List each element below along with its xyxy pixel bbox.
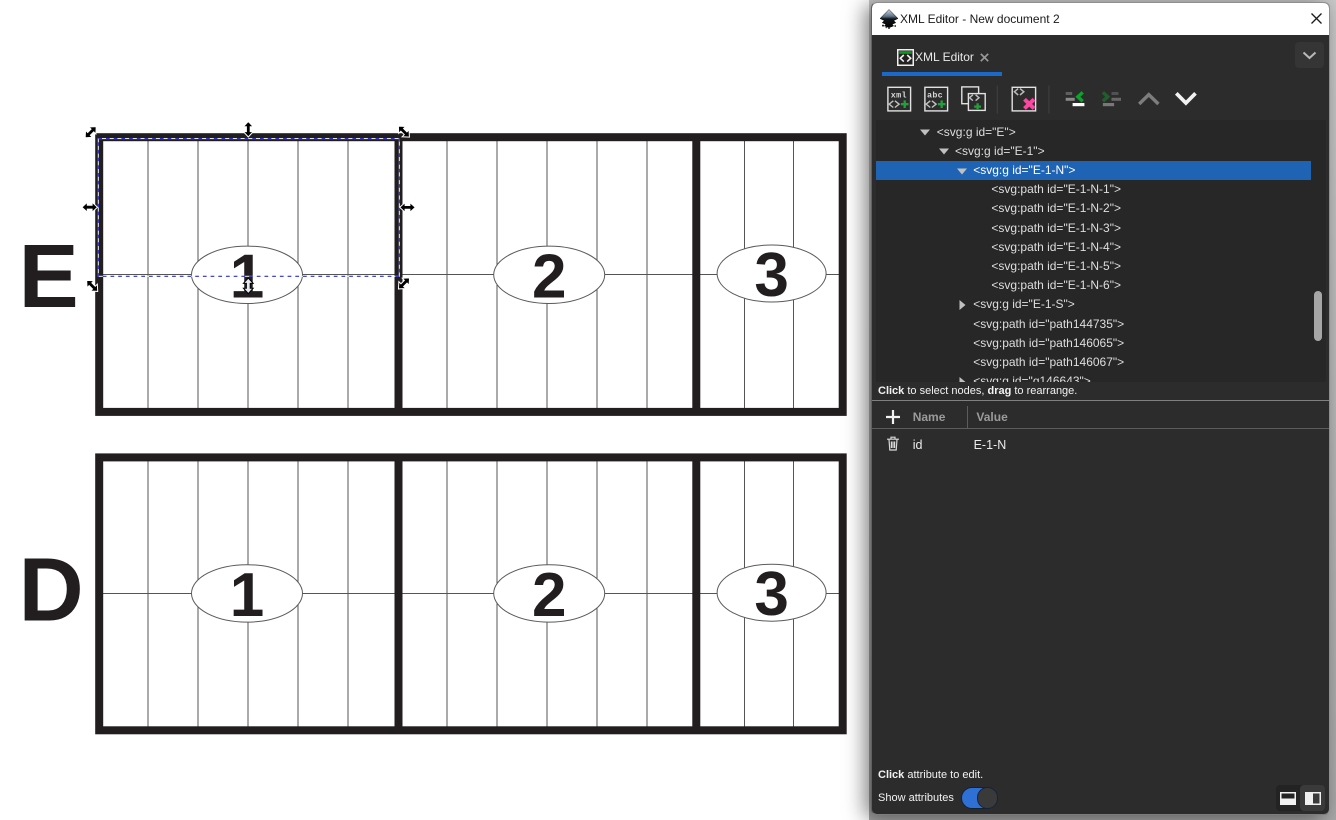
svg-text:E: E <box>19 227 79 327</box>
svg-text:3: 3 <box>754 241 788 310</box>
svg-text:3: 3 <box>754 560 788 629</box>
svg-text:xml: xml <box>891 91 907 101</box>
svg-text:1: 1 <box>230 561 264 630</box>
svg-text:2: 2 <box>532 242 566 311</box>
svg-text:D: D <box>19 541 84 641</box>
svg-text:2: 2 <box>532 561 566 630</box>
svg-text:abc: abc <box>927 91 943 101</box>
